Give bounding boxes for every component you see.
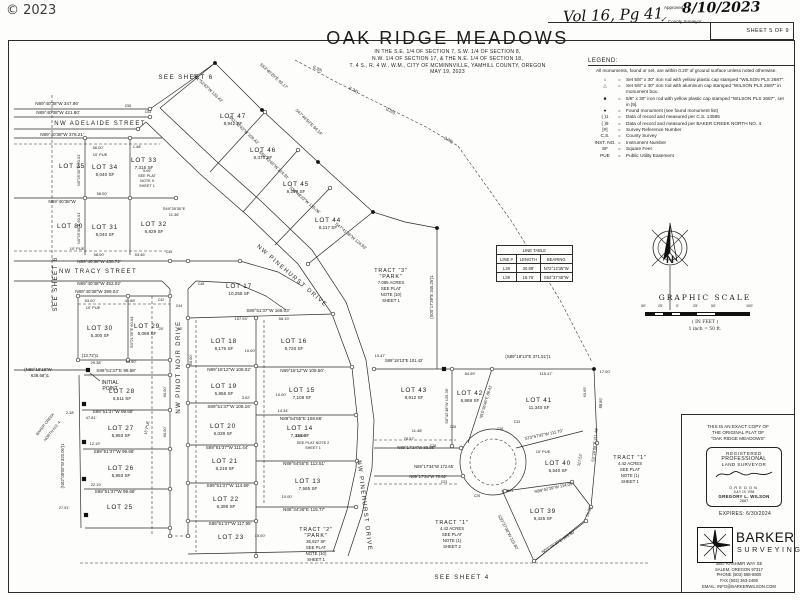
legend-symbol: ●: [592, 108, 618, 114]
legend-item: C.S.=County Survey: [592, 133, 794, 139]
legend-text: County Survey: [626, 133, 786, 139]
plat-subtitle: IN THE S.E. 1/4 OF SECTION 7, S.W. 1/4 O…: [300, 49, 595, 76]
legend-symbol: ■: [592, 96, 618, 108]
legend-text: Data of record and measured per C.S. 135…: [626, 114, 786, 120]
plat-sheet: N89°40'38"W 347.86'N89°40'38"W 421.80'N8…: [0, 0, 800, 600]
legend-item: ( )9=Data of record and measured per BAK…: [592, 121, 794, 127]
legend-symbol: ( )9: [592, 121, 618, 127]
line-table-cell: N72°12'35"W: [540, 264, 572, 273]
legend-text: Survey Reference Number: [626, 127, 786, 133]
scale-tick-label: 100': [746, 304, 753, 308]
legend-equals: =: [618, 77, 626, 83]
legend-item: ( )1=Data of record and measured per C.S…: [592, 114, 794, 120]
firm-name-sub: SURVEYING: [737, 545, 800, 554]
line-table-cell: 18.76': [516, 273, 540, 282]
line-table-cell: L39: [497, 273, 517, 282]
legend-text: Instrument Number: [626, 140, 786, 146]
scale-unit-note: ( IN FEET ): [615, 320, 795, 327]
legend-equals: =: [618, 114, 626, 120]
legend-symbol: ( )1: [592, 114, 618, 120]
legend-text: Data of record and measured per BAKER CR…: [626, 121, 786, 127]
legend-symbol: INST. NO.: [592, 140, 618, 146]
scale-bar: 50'25'0'25'50'100': [615, 304, 795, 320]
legend-item: ■=5/8" x 30" iron rod with yellow plasti…: [592, 96, 794, 108]
exact-copy-line: "OAK RIDGE MEADOWS": [684, 436, 792, 442]
legend-symbol: △: [592, 83, 618, 95]
legend-equals: =: [618, 121, 626, 127]
legend-equals: =: [618, 108, 626, 114]
scale-tick-label: 50': [641, 304, 646, 308]
scale-tick-label: 25': [658, 304, 663, 308]
legend-title: LEGEND:: [588, 58, 794, 66]
signature-icon: [712, 469, 776, 480]
line-table-header: LENGTH: [516, 255, 540, 264]
legend-item: △=Set 5/8" x 30" iron rod with aluminum …: [592, 83, 794, 95]
legend-items: ○=Set 5/8" x 30" iron rod with yellow pl…: [588, 77, 794, 158]
graphic-scale: GRAPHIC SCALE 50'25'0'25'50'100' ( IN FE…: [615, 293, 795, 334]
surveyor-stamp: REGISTERED PROFESSIONAL LAND SURVEYOR OR…: [706, 447, 782, 507]
scale-bar-segments: [645, 312, 750, 316]
plat-subtitle-line: T. 4 S., R. 4 W., W.M., CITY OF MCMINNVI…: [300, 63, 595, 70]
legend-equals: =: [618, 83, 626, 95]
legend-symbol: C.S.: [592, 133, 618, 139]
plat-subtitle-line: IN THE S.E. 1/4 OF SECTION 7, S.W. 1/4 O…: [300, 49, 595, 56]
legend-text: Square Feet: [626, 146, 786, 152]
line-table-header: LINE #: [497, 255, 517, 264]
svg-text:N: N: [666, 254, 674, 266]
legend-item: INST. NO.=Instrument Number: [592, 140, 794, 146]
stamp-license-number: 2687: [707, 499, 781, 503]
copyright-watermark: © 2023: [6, 3, 56, 18]
legend-item: ○=Set 5/8" x 30" iron rod with yellow pl…: [592, 77, 794, 83]
legend-equals: =: [618, 140, 626, 146]
legend-item: [#]=Survey Reference Number: [592, 127, 794, 133]
plat-subtitle-line: N.W. 1/4 OF SECTION 17, & THE N.E. 1/4 O…: [300, 56, 595, 63]
compass-star-icon: [697, 527, 733, 563]
line-table: LINE TABLELINE #LENGTHBEARINGL3830.89'N7…: [496, 245, 573, 282]
legend-item: PUE=Public Utility Easement: [592, 153, 794, 159]
legend-item: ●=Found monument (see found monument lis…: [592, 108, 794, 114]
graphic-scale-title: GRAPHIC SCALE: [615, 293, 795, 302]
legend-equals: =: [618, 127, 626, 133]
line-table-cell: S53°37'45"W: [540, 273, 572, 282]
stamp-expiration: EXPIRES: 6/30/2024: [700, 511, 790, 517]
stamp-land-surveyor: LAND SURVEYOR: [707, 462, 781, 467]
line-table-title: LINE TABLE: [497, 246, 573, 255]
legend-equals: =: [618, 96, 626, 108]
scale-tick-label: 50': [711, 304, 716, 308]
approved-label: Approved: [664, 5, 683, 10]
legend-item: SF=Square Feet: [592, 146, 794, 152]
firm-address: 3657 KASHMIR WAY SESALEM, OREGON 97317PH…: [683, 561, 795, 589]
exact-copy-statement: THIS IS AN EXACT COPY OFTHE ORIGINAL PLA…: [684, 424, 792, 443]
title-block: OAK RIDGE MEADOWS IN THE S.E. 1/4 OF SEC…: [300, 28, 595, 76]
legend-symbol: ○: [592, 77, 618, 83]
legend-symbol: [#]: [592, 127, 618, 133]
scale-tick-label: 0': [676, 304, 679, 308]
plat-title: OAK RIDGE MEADOWS: [300, 28, 595, 49]
sheet-number-badge: SHEET 5 OF 9: [710, 22, 794, 40]
legend-text: Public Utility Easement: [626, 153, 786, 159]
legend: LEGEND: All monuments, found or set, are…: [588, 58, 794, 159]
firm-name: BARKER: [736, 530, 795, 545]
scale-ratio-note: 1 inch = 50 ft.: [615, 327, 795, 334]
plat-subtitle-line: MAY 19, 2023: [300, 69, 595, 76]
line-table-cell: 30.89': [516, 264, 540, 273]
legend-equals: =: [618, 153, 626, 159]
line-table-header: BEARING: [540, 255, 572, 264]
legend-note: All monuments, found or set, are within …: [596, 68, 784, 74]
legend-equals: =: [618, 146, 626, 152]
legend-symbol: PUE: [592, 153, 618, 159]
handwritten-date: 8/10/2023: [682, 0, 761, 17]
scale-tick-label: 25': [693, 304, 698, 308]
legend-equals: =: [618, 133, 626, 139]
legend-symbol: SF: [592, 146, 618, 152]
legend-text: Found monument (see found monument list): [626, 108, 786, 114]
legend-text: 5/8" x 30" iron rod with yellow plastic …: [626, 96, 786, 108]
legend-text: Set 5/8" x 30" iron rod with yellow plas…: [626, 77, 786, 83]
legend-text: Set 5/8" x 30" iron rod with aluminum ca…: [626, 83, 786, 95]
line-table-cell: L38: [497, 264, 517, 273]
firm-address-line: EMAIL: INFO@BARKERWILSON.COM: [683, 584, 795, 590]
